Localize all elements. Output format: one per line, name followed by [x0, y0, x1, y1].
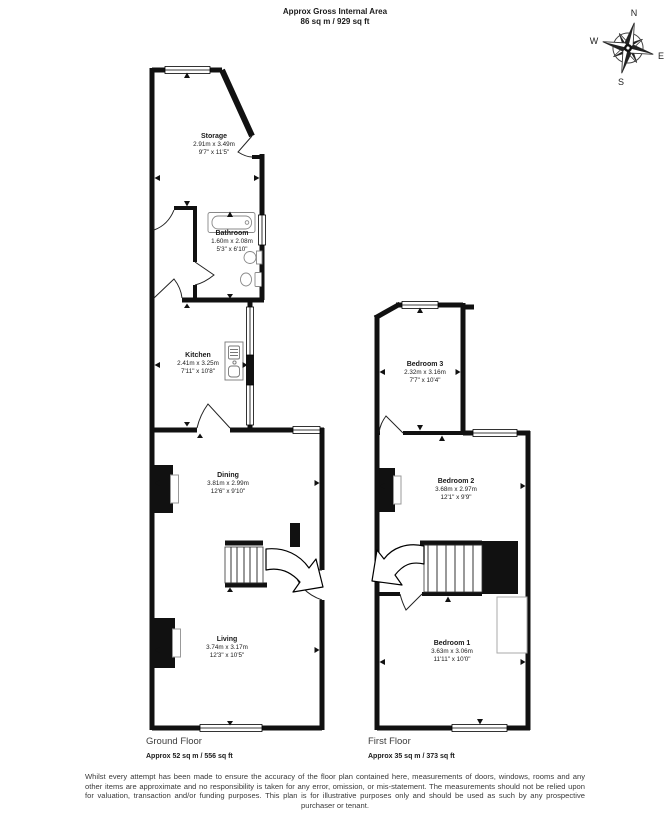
room-dims-imperial: 12'1" x 9'9" — [412, 494, 500, 502]
room-label-dining: Dining 3.81m x 2.99m 12'6" x 9'10" — [184, 472, 272, 495]
room-name: Bedroom 3 — [381, 361, 469, 369]
room-name: Bedroom 2 — [412, 478, 500, 486]
floorplan-page: Approx Gross Internal Area 86 sq m / 929… — [0, 0, 670, 814]
stair-wall-pier — [290, 523, 300, 547]
room-label-living: Living 3.74m x 3.17m 12'3" x 10'5" — [183, 636, 271, 659]
ground-dimension-markers — [155, 73, 320, 726]
room-dims-metric: 1.60m x 2.08m — [188, 238, 276, 246]
compass-label-e: E — [658, 51, 664, 61]
room-name: Kitchen — [154, 352, 242, 360]
room-label-kitchen: Kitchen 2.41m x 3.25m 7'11" x 10'8" — [154, 352, 242, 375]
stairs-up-arrow-icon — [266, 549, 323, 592]
room-dims-imperial: 11'11" x 10'0" — [408, 656, 496, 664]
header-line1: Approx Gross Internal Area — [0, 7, 670, 17]
room-label-bedroom3: Bedroom 3 2.32m x 3.16m 7'7" x 10'4" — [381, 361, 469, 384]
gross-internal-area-header: Approx Gross Internal Area 86 sq m / 929… — [0, 7, 670, 26]
room-dims-imperial: 12'3" x 10'5" — [183, 652, 271, 660]
room-dims-metric: 3.81m x 2.99m — [184, 480, 272, 488]
kitchen-wall-pier — [246, 355, 254, 385]
room-dims-imperial: 5'3" x 6'10" — [188, 246, 276, 254]
room-name: Dining — [184, 472, 272, 480]
room-label-bedroom2: Bedroom 2 3.68m x 2.97m 12'1" x 9'9" — [412, 478, 500, 501]
ground-windows — [165, 67, 320, 732]
room-dims-imperial: 12'6" x 9'10" — [184, 488, 272, 496]
room-dims-metric: 2.91m x 3.49m — [170, 141, 258, 149]
chimney-breast-bedroom2 — [375, 468, 401, 512]
first-floor-plan — [360, 290, 540, 735]
room-dims-metric: 2.41m x 3.25m — [154, 360, 242, 368]
stairs-down-arrow-icon — [372, 545, 424, 585]
chimney-breast-dining — [150, 465, 179, 513]
compass-label-w: W — [590, 36, 599, 46]
toilet-icon — [241, 273, 262, 287]
ground-floor-caption: Ground Floor — [146, 736, 202, 747]
room-label-bedroom1: Bedroom 1 3.63m x 3.06m 11'11" x 10'0" — [408, 640, 496, 663]
stairwell-void — [482, 541, 518, 594]
compass-label-n: N — [631, 8, 638, 18]
ground-floor-area: Approx 52 sq m / 556 sq ft — [146, 753, 233, 760]
room-label-storage: Storage 2.91m x 3.49m 9'7" x 11'5" — [170, 133, 258, 156]
room-dims-metric: 2.32m x 3.16m — [381, 369, 469, 377]
room-dims-imperial: 9'7" x 11'5" — [170, 149, 258, 157]
wardrobe-outline — [497, 597, 527, 653]
room-name: Living — [183, 636, 271, 644]
header-line2: 86 sq m / 929 sq ft — [0, 17, 670, 27]
chimney-breast-living — [150, 618, 181, 668]
first-floor-caption: First Floor — [368, 736, 411, 747]
room-dims-imperial: 7'11" x 10'8" — [154, 368, 242, 376]
room-name: Bedroom 1 — [408, 640, 496, 648]
first-stairs — [372, 545, 482, 592]
compass-rose-icon: N E S W — [588, 4, 668, 88]
disclaimer-text: Whilst every attempt has been made to en… — [85, 772, 585, 810]
room-dims-metric: 3.63m x 3.06m — [408, 648, 496, 656]
room-name: Storage — [170, 133, 258, 141]
room-dims-imperial: 7'7" x 10'4" — [381, 377, 469, 385]
room-label-bathroom: Bathroom 1.60m x 2.08m 5'3" x 6'10" — [188, 230, 276, 253]
room-dims-metric: 3.68m x 2.97m — [412, 486, 500, 494]
compass-label-s: S — [618, 77, 624, 87]
room-name: Bathroom — [188, 230, 276, 238]
first-floor-area: Approx 35 sq m / 373 sq ft — [368, 753, 455, 760]
room-dims-metric: 3.74m x 3.17m — [183, 644, 271, 652]
